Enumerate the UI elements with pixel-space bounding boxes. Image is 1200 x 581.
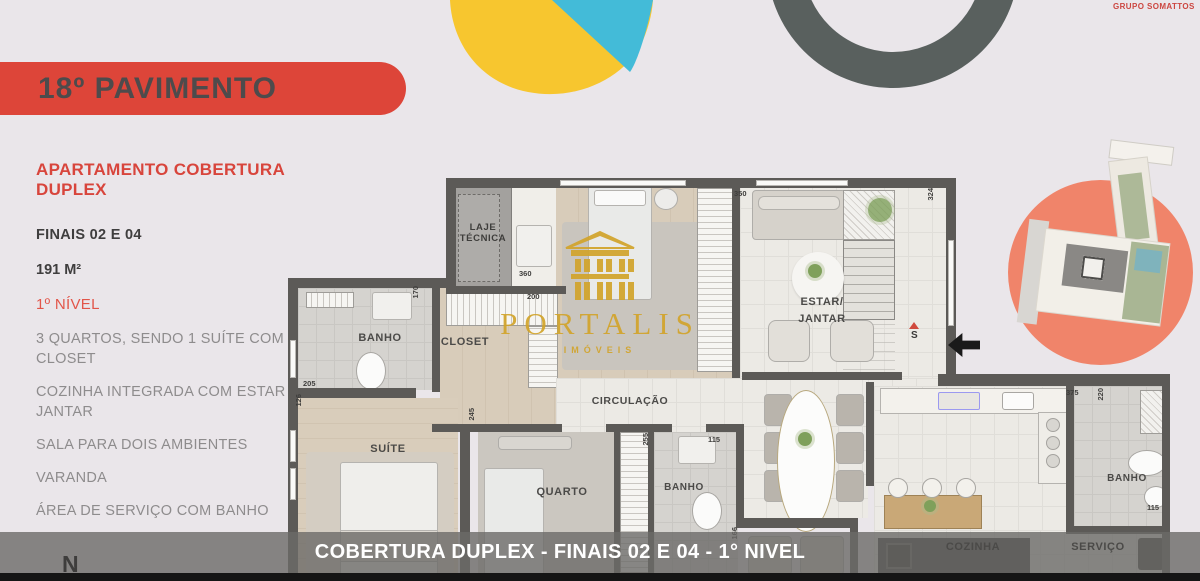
dim-label: 324	[926, 188, 935, 201]
dim-label: 170	[411, 286, 420, 299]
nightstand	[654, 188, 678, 210]
dim-label: 375	[1066, 388, 1079, 397]
cooktop	[938, 392, 980, 410]
oven-knob	[1046, 436, 1060, 450]
wall	[736, 424, 744, 524]
oven-knob	[1046, 418, 1060, 432]
inset-building-core	[1081, 256, 1106, 281]
room-label-banho-servico: BANHO	[1087, 473, 1167, 484]
dim-label: 115	[708, 435, 720, 444]
oven-knob	[1046, 454, 1060, 468]
shower-suite	[306, 292, 354, 308]
dim-label: 245	[467, 408, 476, 421]
temple-logo-icon	[560, 230, 640, 302]
wall	[606, 424, 672, 432]
room-label-quarto: QUARTO	[522, 486, 602, 498]
stair-up-arrow-icon	[909, 322, 919, 329]
dining-chair	[836, 432, 864, 464]
wall	[736, 518, 858, 528]
bed-top-pillow	[594, 190, 646, 206]
stool	[922, 478, 942, 498]
wall	[432, 424, 562, 432]
inset-pool	[1134, 248, 1162, 273]
dining-chair	[836, 394, 864, 426]
page: GRUPO SOMATTOS 18º PAVIMENTO APARTAMENTO…	[0, 0, 1200, 581]
sink	[1002, 392, 1034, 410]
wall	[446, 178, 956, 188]
room-label-suite: SUÍTE	[348, 443, 428, 455]
wall	[288, 388, 416, 398]
window	[560, 180, 686, 186]
watermark-name: PORTALIS	[450, 306, 750, 342]
window	[948, 240, 954, 326]
site-plan-inset	[1017, 132, 1189, 339]
bottom-strip	[0, 573, 1200, 581]
toilet-banho-meio	[692, 492, 722, 530]
stool	[956, 478, 976, 498]
sofa-cushions	[758, 196, 840, 210]
dim-label: 255	[641, 433, 650, 446]
stool	[888, 478, 908, 498]
wall	[938, 374, 1170, 386]
dim-label: 126	[294, 394, 303, 407]
room-label-banho-suite: BANHO	[340, 332, 420, 344]
wall	[866, 382, 874, 486]
room-label-cozinha: COZINHA	[933, 541, 1013, 553]
window	[290, 430, 296, 462]
window	[290, 468, 296, 500]
dim-label: 350	[734, 189, 747, 198]
room-label-servico: SERVIÇO	[1058, 541, 1138, 553]
plant-dining	[798, 432, 812, 446]
wall	[288, 278, 456, 288]
dim-label: 220	[1096, 388, 1105, 401]
shower-servico	[1140, 390, 1164, 434]
window	[756, 180, 848, 186]
caption-bar: COBERTURA DUPLEX - FINAIS 02 E 04 - 1° N…	[0, 532, 1200, 574]
dim-label: 115	[1147, 503, 1159, 512]
dining-table	[777, 390, 835, 532]
vanity-suite	[372, 292, 412, 320]
wall	[1066, 386, 1074, 534]
quarto-dresser	[498, 436, 572, 450]
room-label-estar-jantar: ESTAR/ JANTAR	[782, 294, 862, 327]
plant-coffee-table	[808, 264, 822, 278]
plant-island	[924, 500, 936, 512]
watermark-tagline: IMÓVEIS	[450, 345, 750, 355]
room-label-banho-meio: BANHO	[644, 482, 724, 493]
stair-up-marker: S	[911, 330, 918, 341]
room-label-circulacao: CIRCULAÇÃO	[580, 395, 680, 407]
wall	[288, 278, 298, 575]
dim-label: 205	[303, 379, 316, 388]
wall	[742, 372, 902, 380]
dining-chair	[836, 470, 864, 502]
toilet-suite	[356, 352, 386, 390]
watermark: PORTALIS IMÓVEIS	[450, 230, 750, 355]
plant-stairs	[868, 198, 892, 222]
window	[290, 340, 296, 378]
